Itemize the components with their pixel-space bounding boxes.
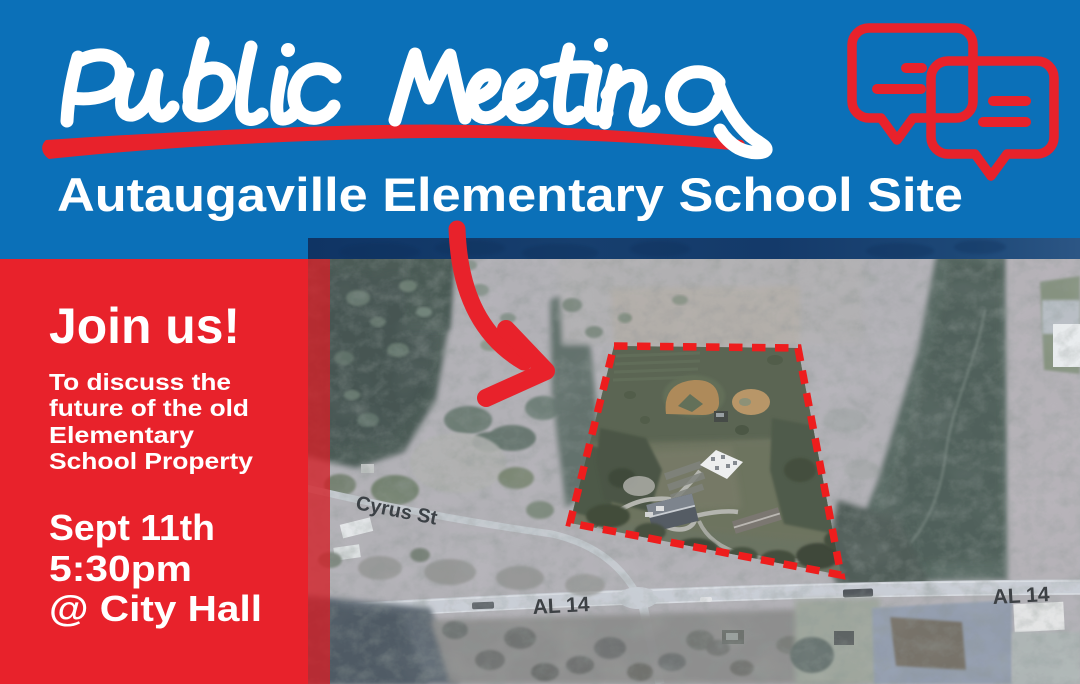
svg-text:AL 14: AL 14 xyxy=(992,583,1050,609)
svg-text:To discuss the: To discuss the xyxy=(49,369,231,395)
svg-text:Sept 11th: Sept 11th xyxy=(49,507,215,548)
svg-text:AL 14: AL 14 xyxy=(532,593,590,619)
svg-text:future of the old: future of the old xyxy=(49,395,249,421)
svg-text:Join us!: Join us! xyxy=(49,298,240,354)
svg-text:5:30pm: 5:30pm xyxy=(49,548,192,589)
svg-text:@ City Hall: @ City Hall xyxy=(49,588,262,629)
svg-text:Elementary: Elementary xyxy=(49,422,194,448)
svg-text:School Property: School Property xyxy=(49,448,253,474)
svg-text:Autaugaville Elementary School: Autaugaville Elementary School Site xyxy=(57,168,963,221)
